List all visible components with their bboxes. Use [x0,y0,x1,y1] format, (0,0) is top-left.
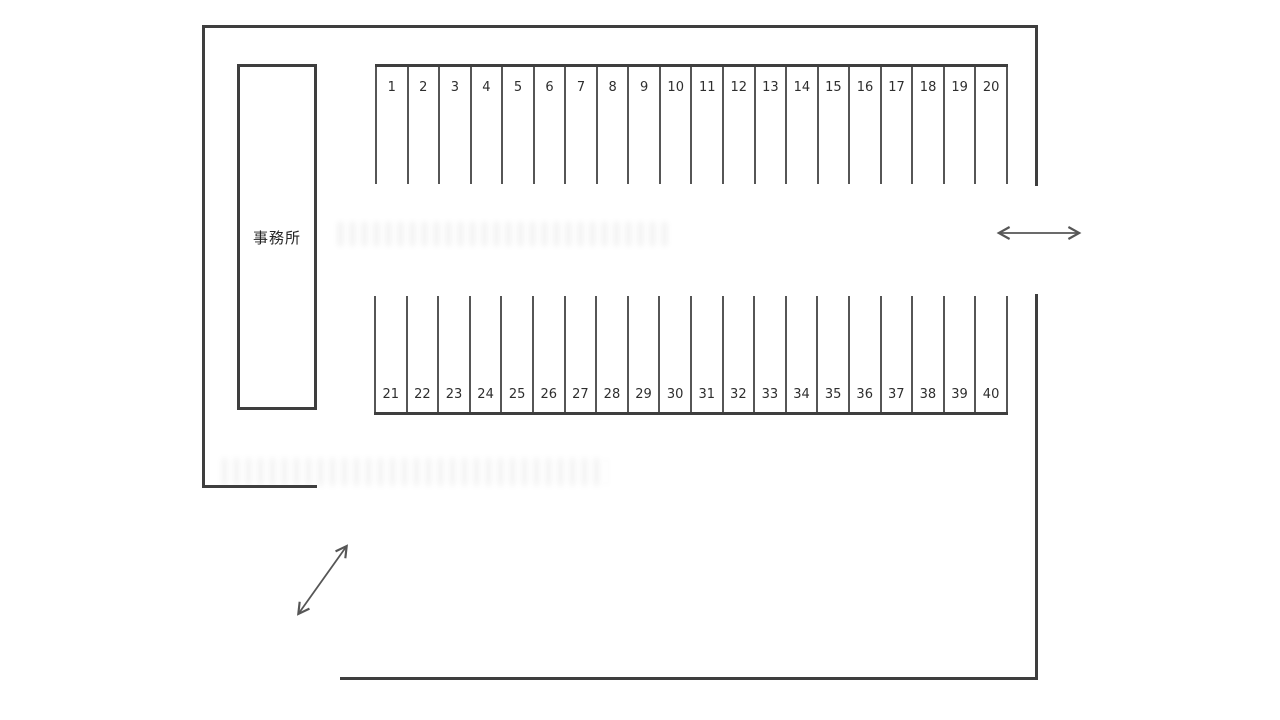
parking-space: 40 [976,296,1008,412]
parking-space: 16 [850,67,882,184]
parking-space-number: 11 [699,81,716,94]
parking-space-number: 33 [762,388,779,401]
parking-space: 33 [755,296,787,412]
parking-space: 22 [408,296,440,412]
parking-space: 31 [692,296,724,412]
parking-space-number: 40 [983,388,1000,401]
parking-space-number: 39 [951,388,968,401]
parking-space-number: 34 [793,388,810,401]
parking-space: 7 [566,67,598,184]
parking-row-bottom: 2122232425262728293031323334353637383940 [374,296,1008,415]
parking-space: 37 [882,296,914,412]
parking-space: 36 [850,296,882,412]
parking-space-number: 4 [482,81,490,94]
parking-space-number: 9 [640,81,648,94]
parking-space-number: 20 [983,81,1000,94]
parking-space-number: 28 [604,388,621,401]
parking-space: 19 [945,67,977,184]
parking-space: 11 [692,67,724,184]
parking-space-number: 15 [825,81,842,94]
parking-space-number: 25 [509,388,526,401]
parking-space-number: 13 [762,81,779,94]
parking-space: 29 [629,296,661,412]
parking-space: 28 [597,296,629,412]
office-label: 事務所 [253,227,301,248]
parking-space: 8 [598,67,630,184]
parking-lot-diagram: 事務所 1234567891011121314151617181920 2122… [0,0,1280,720]
parking-space-number: 30 [667,388,684,401]
parking-space: 3 [440,67,472,184]
parking-space-number: 7 [577,81,585,94]
parking-space: 17 [882,67,914,184]
parking-space: 24 [471,296,503,412]
parking-space-number: 2 [419,81,427,94]
parking-space: 12 [724,67,756,184]
parking-space-number: 29 [635,388,652,401]
parking-space-number: 5 [514,81,522,94]
parking-space: 34 [787,296,819,412]
parking-space-number: 23 [446,388,463,401]
parking-space: 35 [818,296,850,412]
parking-row-top: 1234567891011121314151617181920 [375,64,1008,184]
parking-space: 20 [976,67,1008,184]
parking-space: 39 [945,296,977,412]
parking-space: 25 [502,296,534,412]
parking-space-number: 27 [572,388,589,401]
double-arrow-diagonal-icon [299,547,346,613]
parking-space-number: 37 [888,388,905,401]
parking-space: 13 [756,67,788,184]
parking-space: 18 [913,67,945,184]
parking-space-number: 17 [888,81,905,94]
office-building: 事務所 [237,64,317,410]
parking-space: 14 [787,67,819,184]
parking-space-number: 22 [414,388,431,401]
parking-space: 23 [439,296,471,412]
parking-space-number: 32 [730,388,747,401]
parking-space: 26 [534,296,566,412]
parking-space-number: 18 [920,81,937,94]
parking-space-number: 21 [383,388,400,401]
parking-space-number: 14 [794,81,811,94]
parking-space: 30 [660,296,692,412]
parking-space-number: 16 [857,81,874,94]
parking-space: 4 [472,67,504,184]
parking-space-number: 8 [608,81,616,94]
parking-space: 6 [535,67,567,184]
parking-space-number: 12 [731,81,748,94]
parking-space-number: 35 [825,388,842,401]
parking-space-number: 6 [545,81,553,94]
parking-space: 5 [503,67,535,184]
parking-space-number: 1 [388,81,396,94]
parking-space: 21 [374,296,408,412]
parking-space: 27 [566,296,598,412]
parking-space-number: 26 [540,388,557,401]
parking-space: 32 [724,296,756,412]
parking-space: 1 [375,67,409,184]
parking-space: 38 [913,296,945,412]
parking-space: 15 [819,67,851,184]
parking-space-number: 38 [920,388,937,401]
parking-space-number: 3 [451,81,459,94]
parking-space-number: 24 [477,388,494,401]
parking-space: 10 [661,67,693,184]
parking-space: 2 [409,67,441,184]
parking-space-number: 31 [698,388,715,401]
parking-space-number: 10 [667,81,684,94]
parking-space-number: 19 [951,81,968,94]
parking-space: 9 [629,67,661,184]
parking-space-number: 36 [856,388,873,401]
